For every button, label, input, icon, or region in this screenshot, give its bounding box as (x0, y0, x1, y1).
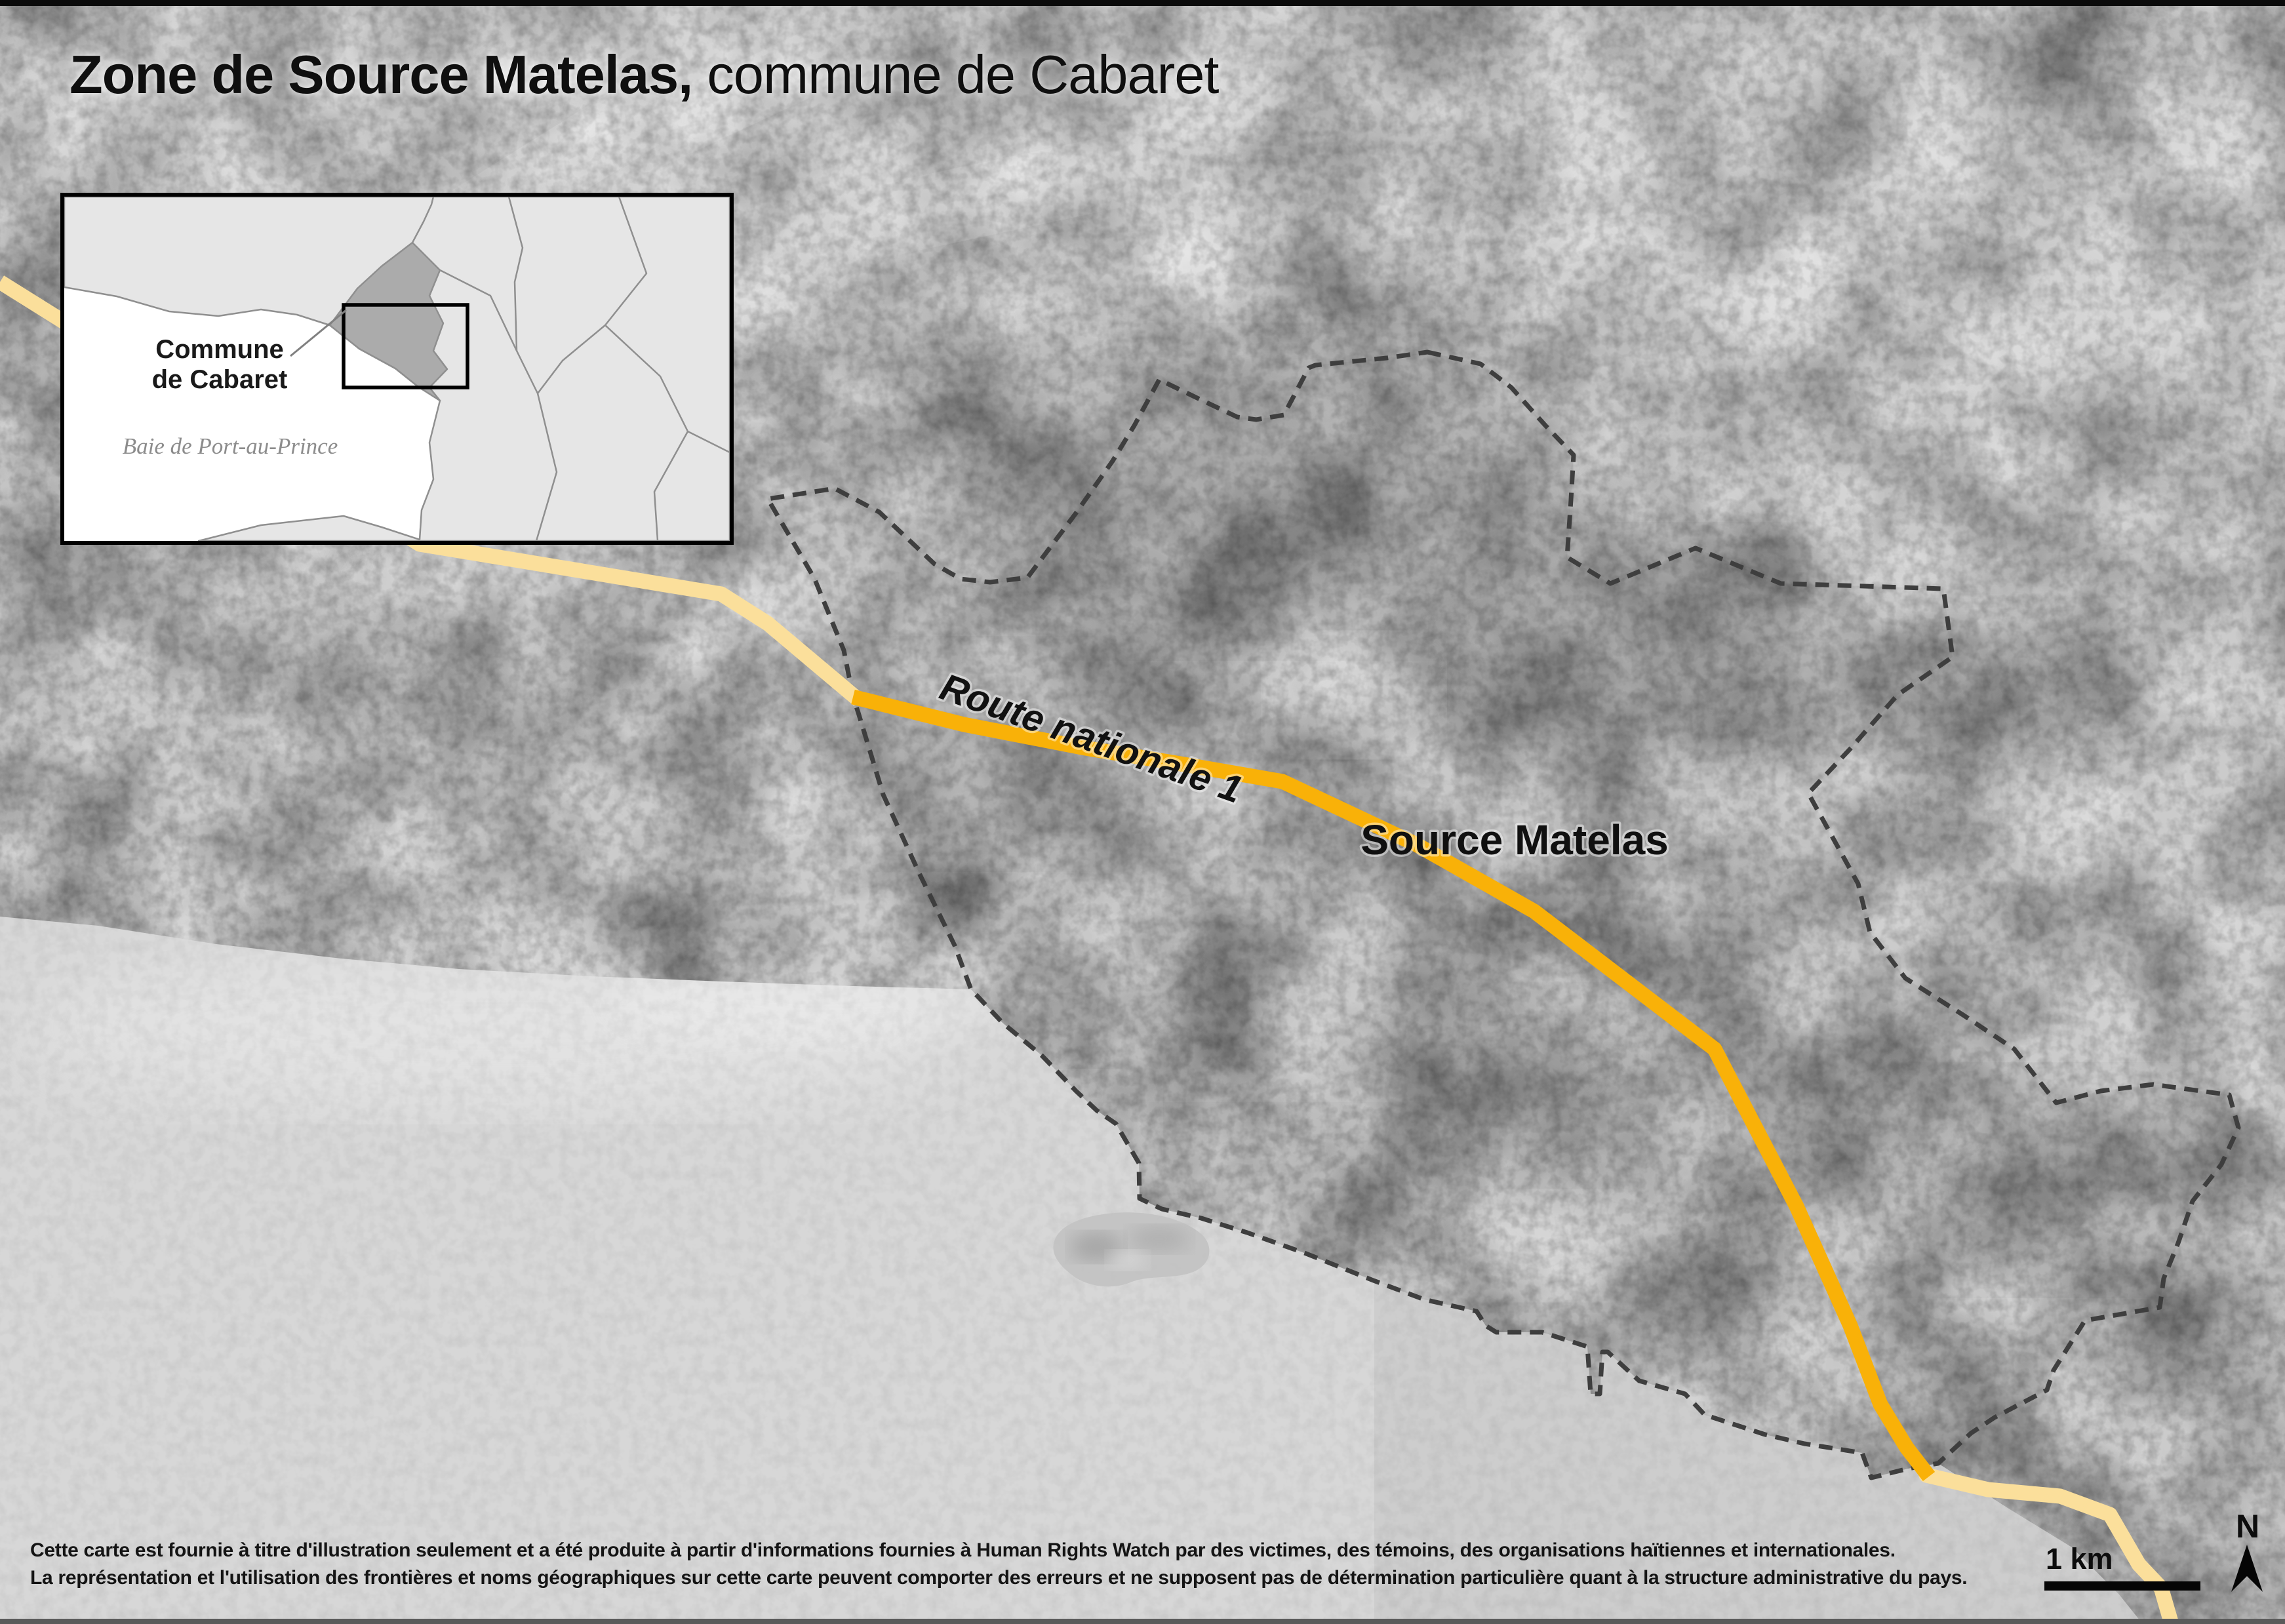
disclaimer-line-1: Cette carte est fournie à titre d'illust… (30, 1537, 1967, 1564)
title-regular: commune de Cabaret (692, 44, 1218, 105)
disclaimer-line-2: La représentation et l'utilisation des f… (30, 1564, 1967, 1592)
disclaimer: Cette carte est fournie à titre d'illust… (30, 1537, 1967, 1592)
north-indicator: N (2227, 1509, 2269, 1598)
inset-commune-label-line2: de Cabaret (152, 365, 288, 394)
scale-bar: 1 km (2044, 1542, 2200, 1591)
inset-locator-map: Commune de Cabaret Baie de Port-au-Princ… (60, 193, 734, 545)
inset-commune-label-line1: Commune (155, 335, 284, 364)
map-document: Route nationale 1 Source Matelas Zone de… (0, 0, 2285, 1624)
top-border (0, 0, 2285, 6)
zone-label: Source Matelas (1361, 816, 1669, 863)
scale-label: 1 km (2046, 1542, 2200, 1576)
north-arrow-icon (2227, 1543, 2269, 1594)
bottom-border (0, 1619, 2285, 1624)
scale-bar-rule (2044, 1581, 2200, 1591)
page-title: Zone de Source Matelas, commune de Cabar… (70, 43, 1218, 106)
inset-bay-label: Baie de Port-au-Prince (123, 433, 338, 459)
title-bold: Zone de Source Matelas, (70, 44, 692, 105)
north-label: N (2227, 1509, 2269, 1543)
